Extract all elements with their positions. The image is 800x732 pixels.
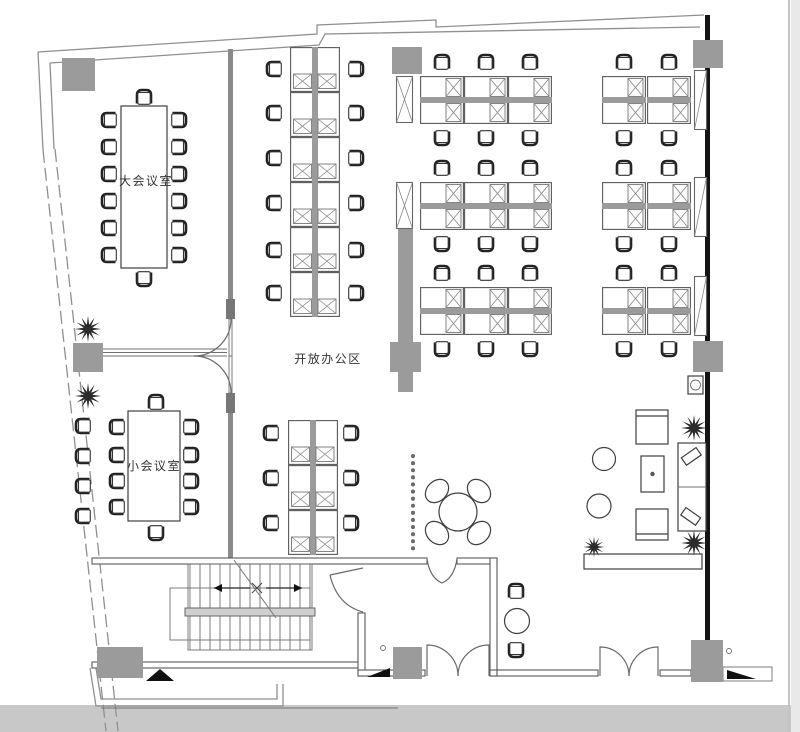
door-stop <box>381 646 386 651</box>
chair <box>172 248 186 262</box>
stair-landing-rail <box>185 608 315 616</box>
chair <box>102 167 116 181</box>
desk-row <box>289 465 338 510</box>
chair <box>509 643 523 657</box>
chair <box>662 161 676 175</box>
chair <box>479 161 493 175</box>
chair <box>76 479 90 493</box>
open-office-label: 开放办公区 <box>294 351 362 366</box>
lounge <box>587 376 706 540</box>
desk-cell <box>508 77 552 124</box>
chair <box>76 509 90 523</box>
chair <box>267 106 281 120</box>
stool <box>593 448 616 471</box>
chair <box>102 140 116 154</box>
vestibule-top-door <box>427 559 457 583</box>
chair <box>76 419 90 433</box>
chair <box>149 526 163 540</box>
door-jamb-upper <box>226 299 235 319</box>
chair <box>479 131 493 145</box>
waiting-chairs <box>76 419 90 523</box>
desk-cell <box>647 183 691 230</box>
desk-row <box>289 510 338 555</box>
chair <box>479 237 493 251</box>
desk-row <box>291 272 340 317</box>
plant-icon <box>75 383 101 409</box>
chair <box>523 342 537 356</box>
desk-bank-vertical-top <box>267 47 363 317</box>
chair <box>435 237 449 251</box>
chair <box>149 395 163 409</box>
desk-banks-right <box>602 55 707 356</box>
desk-cell <box>420 288 464 335</box>
structural-pier <box>390 229 421 392</box>
main-entrance-door <box>427 645 489 676</box>
chair <box>479 266 493 280</box>
chair <box>184 448 198 462</box>
armchair <box>636 410 668 444</box>
stair-treads <box>190 564 310 650</box>
chair <box>479 342 493 356</box>
column <box>393 647 422 679</box>
chair <box>617 161 631 175</box>
chair <box>479 55 493 69</box>
round-table <box>439 493 477 531</box>
center-divider-wall-upper <box>228 49 233 299</box>
desk-cell <box>420 183 464 230</box>
chair <box>523 161 537 175</box>
meeting-pod <box>421 475 496 550</box>
chair <box>344 471 358 485</box>
chair <box>344 516 358 530</box>
chair <box>435 342 449 356</box>
end-panel <box>695 277 707 336</box>
plant-icon <box>681 530 707 556</box>
chair <box>617 266 631 280</box>
chair <box>435 55 449 69</box>
chair <box>435 161 449 175</box>
chair <box>435 131 449 145</box>
armchair <box>636 509 668 540</box>
chair <box>184 500 198 514</box>
column <box>97 647 143 678</box>
desk-row <box>289 420 338 465</box>
chair <box>110 474 124 488</box>
chair <box>102 248 116 262</box>
chair <box>662 237 676 251</box>
vestibule-left-wall <box>358 613 365 676</box>
desk-row <box>291 182 340 227</box>
plant-icon <box>75 316 101 342</box>
chair <box>267 286 281 300</box>
chair <box>184 474 198 488</box>
desk-row <box>291 47 340 92</box>
desk-row <box>291 227 340 272</box>
chair <box>523 55 537 69</box>
floor-plan-drawing: 大会议室 小会议室 开放办公区 <box>0 0 800 732</box>
chair <box>76 449 90 463</box>
chair <box>110 500 124 514</box>
chair <box>264 471 278 485</box>
chair <box>102 221 116 235</box>
chair <box>523 237 537 251</box>
chair <box>102 194 116 208</box>
reception-set <box>505 584 530 657</box>
chair <box>264 426 278 440</box>
chair <box>662 266 676 280</box>
desk-cell <box>420 77 464 124</box>
bottom-wall-c <box>497 670 598 676</box>
chair <box>102 113 116 127</box>
chair <box>617 342 631 356</box>
chair <box>267 196 281 210</box>
column <box>62 58 95 91</box>
chair <box>267 151 281 165</box>
right-entrance-door <box>600 647 658 676</box>
stool <box>587 494 611 518</box>
bottom-wall-b <box>490 670 497 676</box>
column <box>693 40 723 68</box>
floor-plan: 大会议室 小会议室 开放办公区 <box>0 0 800 732</box>
chair <box>523 131 537 145</box>
column <box>392 47 422 74</box>
counter-cabinet <box>584 554 702 569</box>
end-panel <box>397 183 413 229</box>
table-dot <box>650 472 654 476</box>
desk-cell <box>647 77 691 124</box>
column <box>691 640 723 682</box>
chair <box>110 420 124 434</box>
staircase <box>170 560 315 650</box>
chair <box>172 140 186 154</box>
chair <box>349 243 363 257</box>
desk-cell <box>647 288 691 335</box>
chair <box>137 272 151 286</box>
column <box>73 343 103 372</box>
desk-cell <box>602 288 646 335</box>
chair <box>349 286 363 300</box>
desk-cell <box>464 77 508 124</box>
chair <box>435 266 449 280</box>
desk-cell <box>464 183 508 230</box>
end-panel <box>695 178 707 237</box>
desk-row <box>291 137 340 182</box>
column <box>693 341 723 372</box>
door-stop <box>727 649 732 654</box>
chair <box>617 55 631 69</box>
pod-chair <box>463 517 496 550</box>
chair <box>172 113 186 127</box>
end-panel <box>397 77 413 123</box>
large-conference-room: 大会议室 <box>102 90 186 286</box>
direction-arrow-icon <box>214 584 222 592</box>
chair <box>349 106 363 120</box>
desk-banks-middle <box>397 55 553 356</box>
photo-bottom-band <box>0 705 800 732</box>
direction-arrow-icon <box>294 584 302 592</box>
chair <box>662 55 676 69</box>
small-conference-room: 小会议室 <box>110 395 198 540</box>
chair <box>172 167 186 181</box>
chair <box>267 62 281 76</box>
pod-chair <box>421 475 454 508</box>
stair-hall-door <box>330 568 363 612</box>
round-table <box>505 609 530 634</box>
desk-cell <box>464 288 508 335</box>
desk-cell <box>508 288 552 335</box>
stair-hall-top-wall <box>92 558 427 564</box>
chair <box>110 448 124 462</box>
chair <box>264 516 278 530</box>
chair <box>523 266 537 280</box>
desk-cell <box>602 183 646 230</box>
bottom-wall-d <box>660 670 691 676</box>
chair <box>509 584 523 598</box>
chair <box>349 151 363 165</box>
large-meeting-room-label: 大会议室 <box>119 173 173 188</box>
chair <box>662 342 676 356</box>
chair <box>349 62 363 76</box>
chair <box>617 131 631 145</box>
photo-right-edge <box>791 0 800 732</box>
center-divider-wall-lower <box>228 413 233 559</box>
pod-chair <box>463 475 496 508</box>
chair <box>617 237 631 251</box>
desk-cell <box>602 77 646 124</box>
chair <box>344 426 358 440</box>
plant-icon <box>681 415 707 441</box>
desk-bank-vertical-bottom <box>264 420 358 555</box>
threshold-wedge-right <box>727 670 756 679</box>
chair <box>267 243 281 257</box>
chair <box>137 90 151 104</box>
end-panel <box>695 71 707 130</box>
chair <box>662 131 676 145</box>
small-meeting-room-label: 小会议室 <box>127 458 181 473</box>
chair <box>349 196 363 210</box>
chair <box>172 194 186 208</box>
vestibule-right-wall <box>490 558 497 676</box>
partition-screen <box>103 349 227 356</box>
door-jamb-lower <box>226 393 235 413</box>
desk-row <box>291 92 340 137</box>
threshold-wedge-stairs <box>146 669 174 681</box>
pod-chair <box>421 517 454 550</box>
chair <box>172 221 186 235</box>
desk-cell <box>508 183 552 230</box>
chair <box>184 420 198 434</box>
